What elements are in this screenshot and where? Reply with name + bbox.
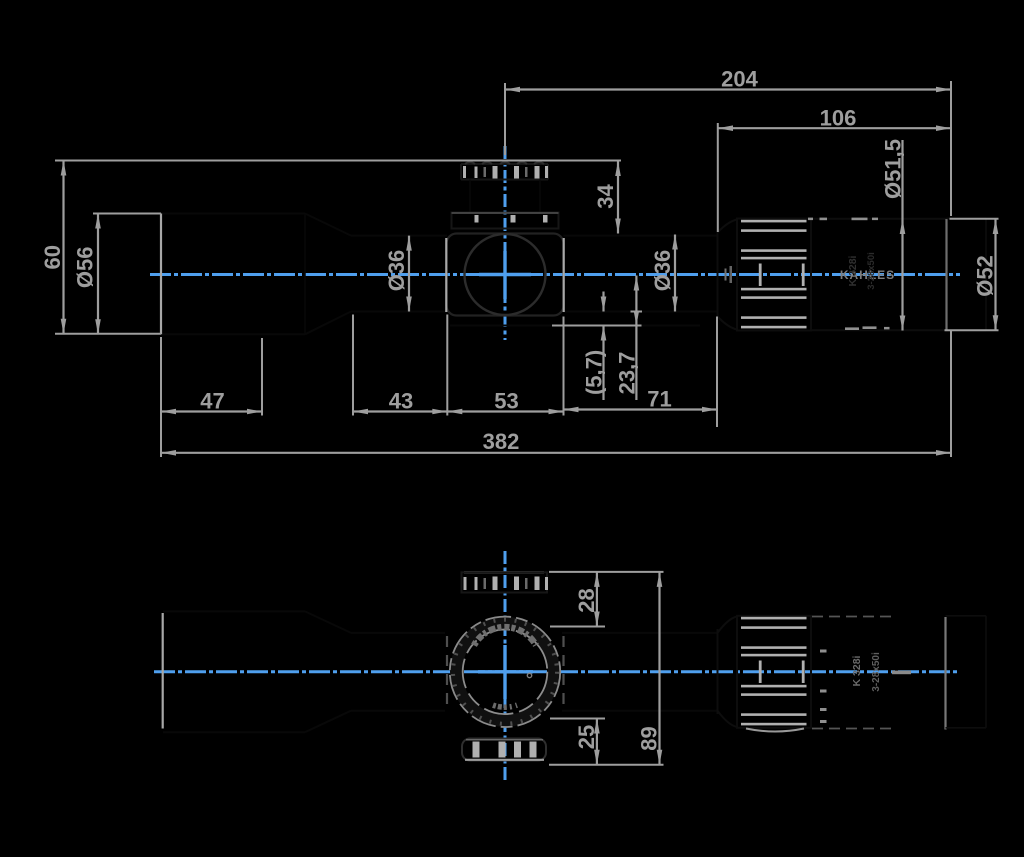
svg-text:Ø56: Ø56 — [73, 247, 98, 289]
svg-text:K 328i: K 328i — [847, 255, 859, 286]
svg-text:23,7: 23,7 — [615, 352, 640, 395]
svg-text:34: 34 — [593, 184, 618, 209]
svg-text:3-28x50i: 3-28x50i — [871, 652, 882, 692]
svg-text:382: 382 — [483, 429, 520, 454]
svg-text:89: 89 — [637, 726, 662, 750]
svg-text:60: 60 — [40, 245, 65, 269]
svg-text:Ø51,5: Ø51,5 — [881, 139, 906, 199]
svg-text:43: 43 — [389, 389, 413, 414]
svg-text:3-28x50i: 3-28x50i — [866, 252, 877, 290]
svg-text:K 328i: K 328i — [851, 655, 863, 686]
svg-text:71: 71 — [647, 387, 671, 412]
svg-text:204: 204 — [721, 67, 758, 92]
svg-text:Ø52: Ø52 — [973, 255, 998, 297]
svg-text:47: 47 — [200, 389, 224, 414]
svg-text:25: 25 — [574, 725, 599, 749]
svg-text:106: 106 — [820, 106, 857, 131]
svg-text:28: 28 — [574, 588, 599, 612]
svg-text:Ø36: Ø36 — [650, 250, 675, 292]
svg-text:(5,7): (5,7) — [582, 350, 607, 395]
svg-text:Ø36: Ø36 — [384, 250, 409, 292]
svg-text:53: 53 — [494, 389, 518, 414]
